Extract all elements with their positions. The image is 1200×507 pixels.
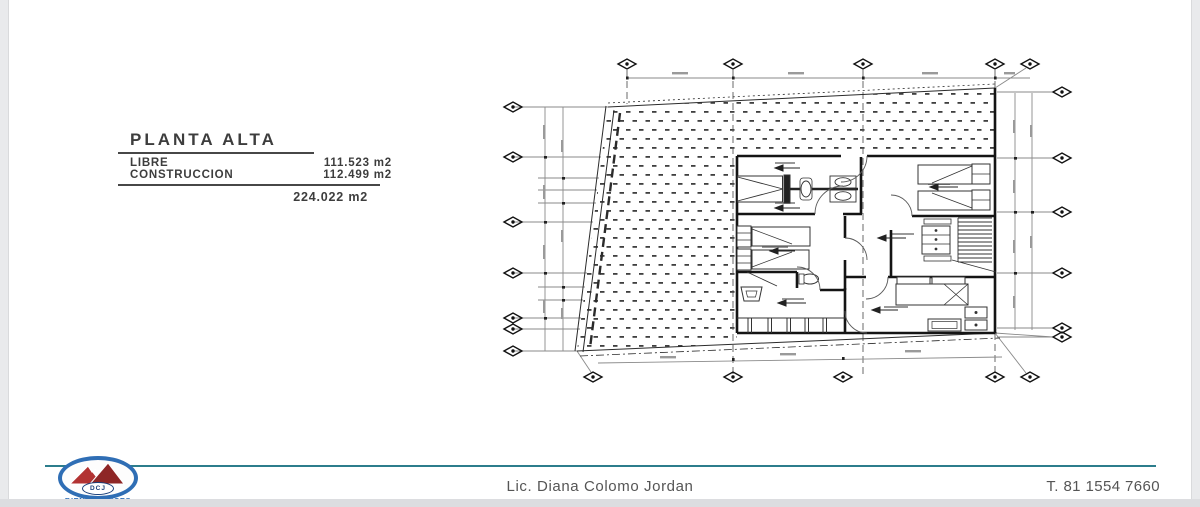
bed [918, 165, 972, 184]
floor-plan-sheet: PLANTA ALTA LIBRE 111.523 m2 CONSTRUCCIO… [0, 0, 1200, 507]
closet [738, 176, 783, 202]
pillow [932, 277, 965, 284]
nightstand [737, 226, 751, 247]
bed [752, 250, 809, 269]
bench [928, 319, 961, 331]
bed [752, 227, 810, 246]
agency-logo: DCJ BIENES RAICES [56, 456, 140, 502]
bed [918, 191, 972, 210]
pillow [897, 277, 930, 284]
bed [896, 284, 968, 305]
agent-name: Lic. Diana Colomo Jordan [430, 478, 770, 495]
nightstand [737, 249, 751, 270]
shower [741, 287, 762, 301]
balcony-railing [737, 318, 845, 333]
viewer-edge-left [0, 0, 9, 507]
phone-number: T. 81 1554 7660 [1000, 478, 1160, 495]
stairs [952, 218, 996, 272]
logo-initials: DCJ [82, 482, 114, 495]
viewer-edge-right [1191, 0, 1200, 507]
floor-plan-drawing [0, 0, 1200, 507]
footer-divider [45, 465, 1156, 467]
viewer-edge-bottom [0, 499, 1200, 507]
